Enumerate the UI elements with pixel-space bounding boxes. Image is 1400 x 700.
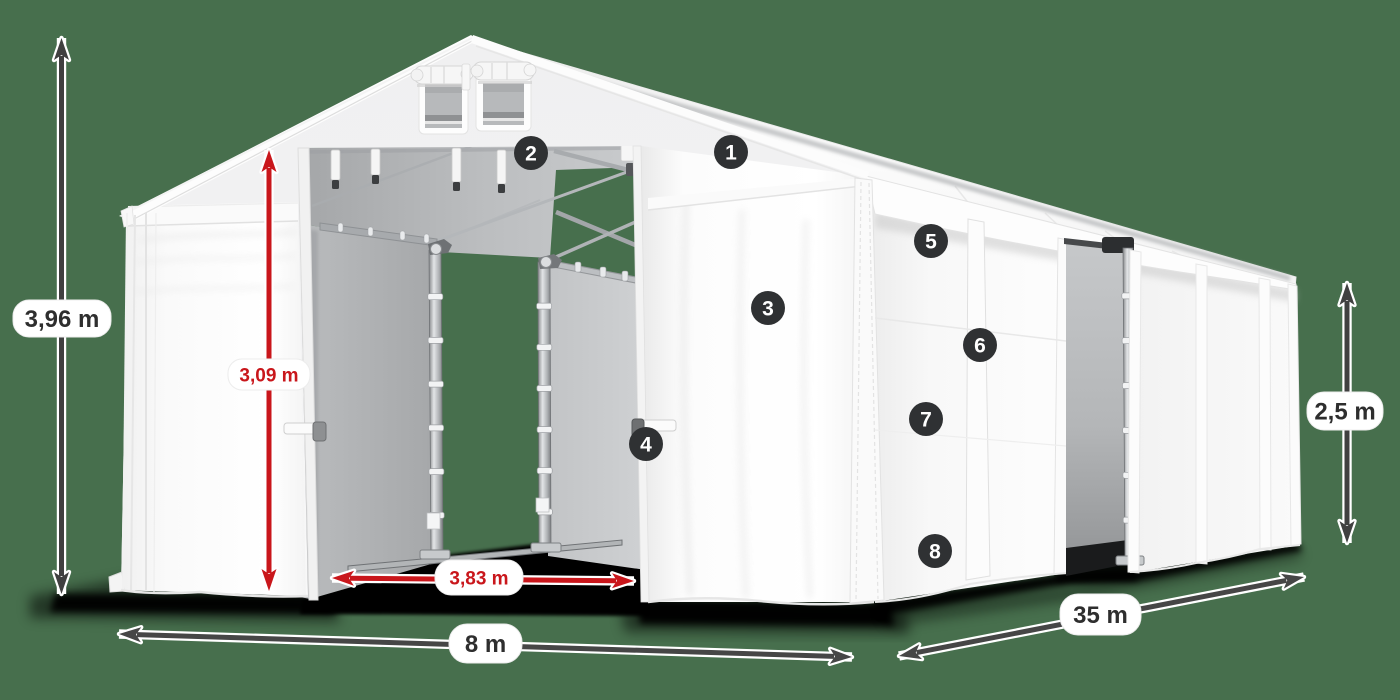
svg-text:3: 3 <box>762 298 774 321</box>
svg-text:1: 1 <box>725 142 737 165</box>
svg-text:7: 7 <box>920 409 932 432</box>
svg-text:5: 5 <box>925 231 937 254</box>
svg-text:8 m: 8 m <box>465 631 506 658</box>
svg-text:8: 8 <box>929 541 941 564</box>
svg-text:3,83 m: 3,83 m <box>449 568 508 589</box>
svg-text:3,09 m: 3,09 m <box>239 365 298 386</box>
svg-text:6: 6 <box>974 335 986 358</box>
svg-text:2: 2 <box>525 143 537 166</box>
svg-text:2,5 m: 2,5 m <box>1314 399 1375 426</box>
svg-text:4: 4 <box>640 434 652 457</box>
svg-text:3,96 m: 3,96 m <box>25 306 100 333</box>
svg-text:35 m: 35 m <box>1073 602 1128 629</box>
